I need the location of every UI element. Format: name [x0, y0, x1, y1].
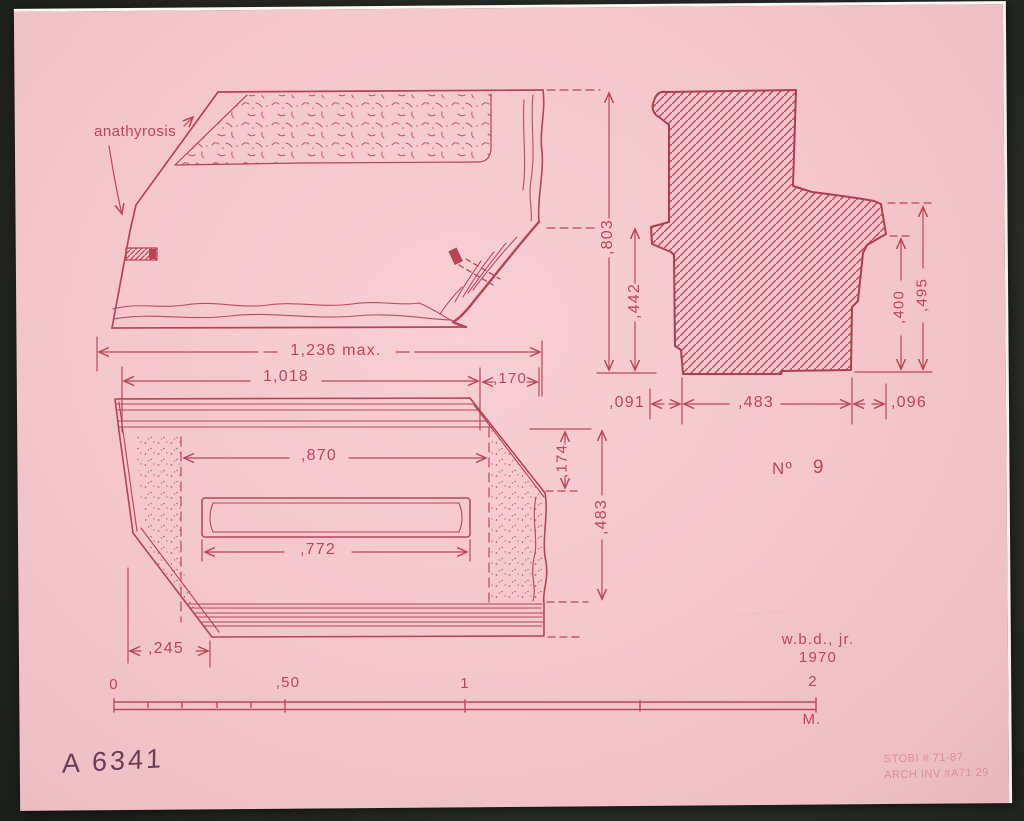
dim-plan-top-width: ,870: [301, 448, 337, 464]
dim-section-bottom-right: ,096: [891, 395, 927, 411]
scale-tick-2: 2: [808, 674, 818, 689]
catalog-number-handwritten: A 6341: [62, 745, 164, 777]
scale-tick-50: ,50: [276, 675, 300, 690]
dim-plan-recess-width: ,772: [300, 542, 336, 558]
dim-plan-right-upper: ,174: [555, 444, 570, 478]
dim-elevation-right: ,170: [493, 371, 527, 386]
figure-number-prefix: Nº: [772, 460, 793, 477]
scanned-drawing-sheet: { "sheet": { "figure_prefix": "Nº", "fig…: [0, 0, 1024, 821]
scale-unit-label: M.: [802, 712, 821, 727]
dim-section-height-inner: ,442: [627, 283, 643, 319]
recess-cutting: [202, 498, 470, 537]
scale-tick-0: 0: [109, 677, 119, 692]
pry-hole-detail: [126, 248, 157, 260]
dim-elevation-left: 1,018: [263, 369, 309, 385]
dim-section-height-outer: ,803: [600, 219, 616, 255]
inventory-stamp-line2: ARCH INV #A71 29: [884, 766, 989, 785]
draftsman-initials: w.b.d., jr.: [782, 632, 854, 647]
figure-number: Nº 9: [772, 458, 825, 477]
dim-section-bottom-left: ,091: [609, 395, 645, 411]
figure-number-value: 9: [813, 458, 825, 477]
dim-plan-left-offset: ,245: [148, 641, 184, 657]
dim-section-bottom-middle: ,483: [738, 395, 774, 411]
dim-section-right-inner: ,400: [892, 290, 907, 324]
dim-plan-right-lower: ,483: [594, 499, 610, 535]
elevation-view: [97, 90, 544, 432]
scale-bar: [114, 698, 816, 712]
plan-view: [115, 398, 602, 667]
section-profile: [547, 90, 933, 424]
dim-section-right-outer: ,495: [915, 278, 930, 312]
scale-tick-1: 1: [460, 676, 470, 691]
anathyrosis-label: anathyrosis: [94, 124, 176, 139]
inventory-stamp: STOBI # 71-87 ARCH INV #A71 29: [884, 750, 989, 785]
dim-elevation-total: 1,236 max.: [290, 343, 381, 359]
drawing-year: 1970: [799, 650, 837, 665]
